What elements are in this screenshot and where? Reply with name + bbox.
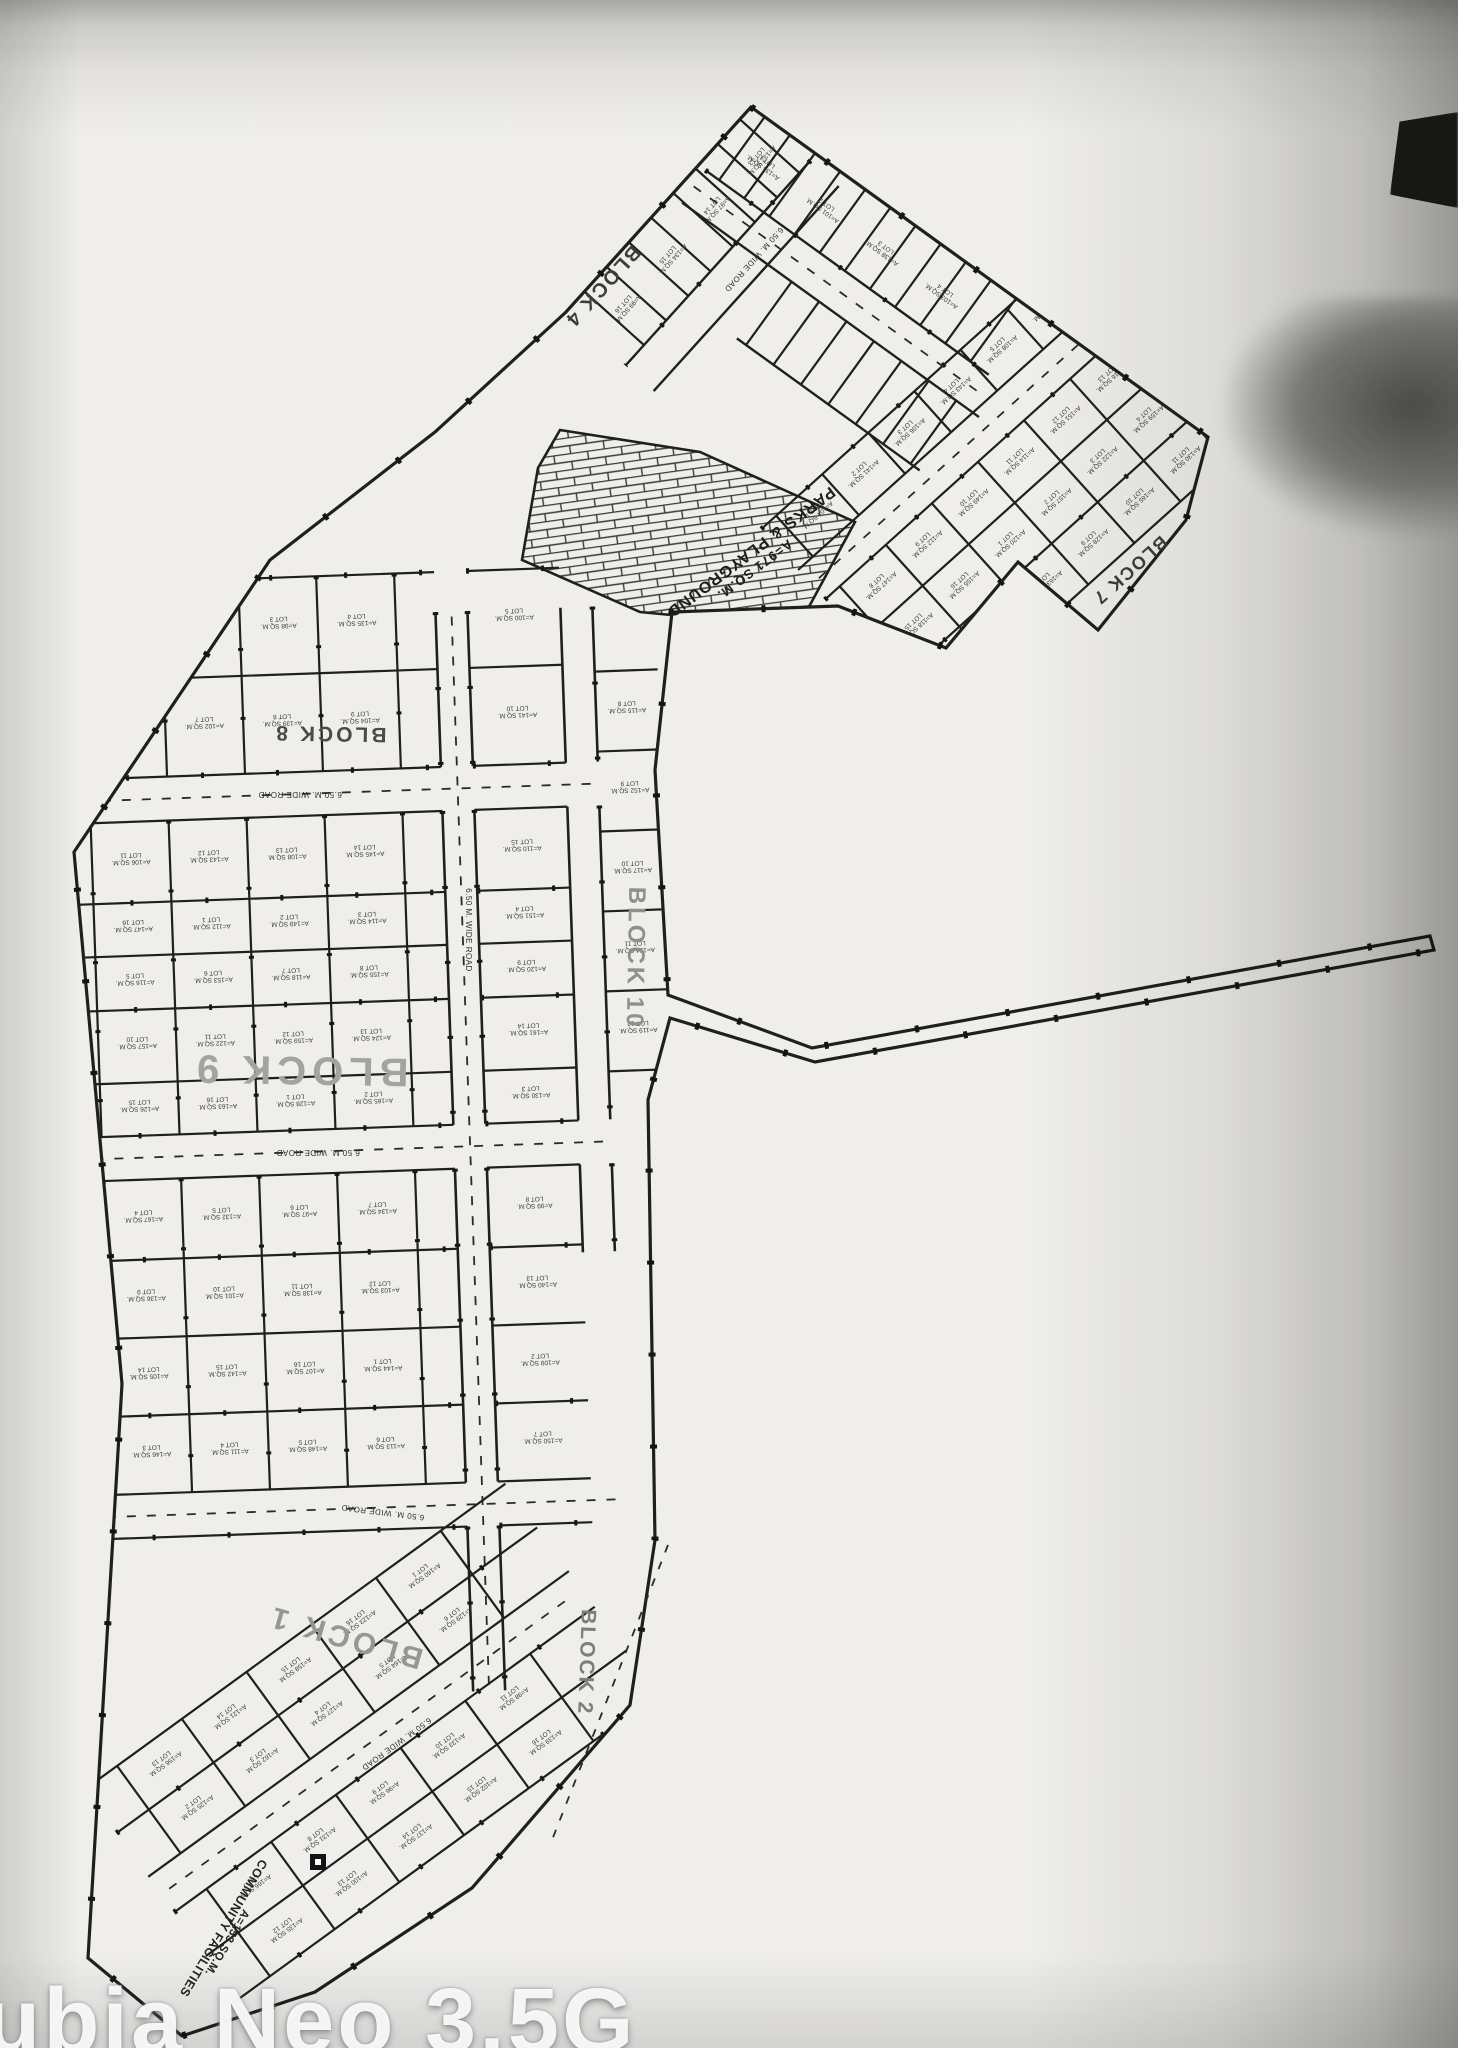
lot-label: A=155 SQ.M.LOT 8 xyxy=(349,963,389,978)
lot-label: A=146 SQ.M.LOT 3 xyxy=(132,1443,172,1458)
lot-line xyxy=(465,1701,528,1788)
lot-label: A=151 SQ.M.LOT 12 xyxy=(1043,399,1082,436)
lot-label: A=111 SQ.M.LOT 4 xyxy=(210,1440,249,1455)
lot-label: A=145 SQ.M.LOT 14 xyxy=(345,843,385,858)
lot-label: A=100 SQ.M.LOT 13 xyxy=(329,1863,369,1897)
road-label-4: 6.50 M. WIDE ROAD xyxy=(723,226,786,294)
lot-label: A=120 SQ.M.LOT 9 xyxy=(506,957,546,972)
lot-line xyxy=(862,313,1226,641)
lot-label: A=126 SQ.M.LOT 15 xyxy=(119,1098,159,1113)
lot-line xyxy=(487,1164,580,1167)
lot-label: A=151 SQ.M.LOT 4 xyxy=(504,904,544,919)
lot-line xyxy=(44,572,434,586)
lot-label: A=101 SQ.M.LOT 10 xyxy=(204,1284,244,1299)
lot-label: A=149 SQ.M.LOT 2 xyxy=(269,912,309,927)
lot-label: A=99 SQ.M.LOT 8 xyxy=(516,1194,552,1209)
lot-label: A=162 SQ.M.LOT 3 xyxy=(239,1740,279,1774)
lot-label: A=121 SQ.M.LOT 14 xyxy=(208,1697,248,1731)
lot-label: A=156 SQ.M.LOT 13 xyxy=(143,1744,183,1778)
lot-label: A=139 SQ.M.LOT 16 xyxy=(523,1722,563,1756)
lot-label: A=134 SQ.M.LOT 15 xyxy=(651,238,688,277)
lot-line xyxy=(856,361,902,424)
lot-label: A=141 SQ.M.LOT 2 xyxy=(842,453,881,490)
lot-label: A=158 SQ.M.LOT 15 xyxy=(272,1650,312,1684)
monument-marker-center xyxy=(315,1859,321,1865)
lot-line xyxy=(567,807,578,1121)
lot-label: A=124 SQ.M.LOT 13 xyxy=(351,1026,391,1041)
lot-label: A=142 SQ.M.LOT 15 xyxy=(207,1362,247,1377)
lot-line xyxy=(483,1067,576,1070)
lot-line xyxy=(612,1163,615,1251)
south-lot-grid: A=156 SQ.M.LOT 13A=121 SQ.M.LOT 14A=158 … xyxy=(85,1484,659,2000)
lot-line xyxy=(455,1169,466,1483)
lot-label: A=116 SQ.M.LOT 5 xyxy=(115,971,154,986)
lot-line xyxy=(477,888,570,891)
lot-label: A=108 SQ.M.LOT 5 xyxy=(980,328,1019,365)
lot-label: A=141 SQ.M.LOT 10 xyxy=(497,704,537,719)
lot-line xyxy=(82,584,89,779)
block-label-block-7: BLOCK 7 xyxy=(1089,532,1172,609)
lot-label: A=122 SQ.M.LOT 3 xyxy=(1080,440,1119,477)
lot-line xyxy=(401,1748,464,1835)
lot-label: A=159 SQ.M.LOT 4 xyxy=(1126,398,1165,435)
lot-line xyxy=(1116,337,1226,460)
lot-line xyxy=(498,1478,591,1481)
lot-label: A=114 SQ.M.LOT 3 xyxy=(347,910,386,925)
lot-label: A=147 SQ.M.LOT 16 xyxy=(113,918,153,933)
lot-line xyxy=(182,1719,245,1806)
lot-line xyxy=(911,401,957,464)
lot-label: A=127 SQ.M.LOT 4 xyxy=(304,1693,344,1727)
lot-line xyxy=(169,821,180,1135)
lot-label: A=157 SQ.M.LOT 10 xyxy=(117,1035,157,1050)
lot-label: A=140 SQ.M.LOT 13 xyxy=(517,1273,557,1288)
lot-line xyxy=(1099,225,1136,266)
lot-line xyxy=(840,586,950,709)
road-label-0: 6.50 M. WIDE ROAD xyxy=(258,790,342,799)
corner-ticks xyxy=(82,584,89,779)
lot-label: A=114 SQ.M.LOT 11 xyxy=(997,440,1035,476)
lot-line xyxy=(746,282,792,345)
lot-label: A=104 SQ.M.LOT 9 xyxy=(340,709,380,724)
lot-label: A=131 SQ.M.LOT 8 xyxy=(297,1820,337,1854)
lot-label: A=152 SQ.M.LOT 9 xyxy=(610,779,650,794)
lot-label: A=103 SQ.M.LOT 12 xyxy=(360,1279,400,1294)
lot-label: A=130 SQ.M.LOT 11 xyxy=(1163,439,1202,476)
photo-background-corner-object xyxy=(1390,112,1458,208)
lot-line xyxy=(1024,420,1134,543)
lot-line xyxy=(469,665,562,668)
block-label-block-2: BLOCK 2 xyxy=(573,1609,600,1716)
lot-line xyxy=(978,462,1088,585)
lot-label: A=153 SQ.M.LOT 6 xyxy=(193,968,233,983)
lot-line xyxy=(769,153,815,216)
lot-label: A=136 SQ.M.LOT 9 xyxy=(126,1287,166,1302)
lot-line xyxy=(117,1766,180,1853)
lot-label: A=133 SQ.M.LOT 10 xyxy=(426,1726,466,1760)
lot-label: A=108 SQ.M.LOT 13 xyxy=(267,845,307,860)
lot-label: A=155 SQ.M.LOT 16 xyxy=(942,564,981,601)
lot-label: A=153 SQ.M.LOT 14 xyxy=(1136,316,1175,353)
lot-line xyxy=(580,1164,583,1252)
photo-background-object xyxy=(1222,298,1458,538)
lot-label: A=135 SQ.M.LOT 4 xyxy=(337,612,377,627)
lot-label: A=110 SQ.M.LOT 15 xyxy=(502,837,541,852)
lot-label: A=159 SQ.M.LOT 12 xyxy=(273,1029,313,1044)
block-label-block-10: BLOCK 10 xyxy=(621,887,650,1030)
lot-label: A=163 SQ.M.LOT 16 xyxy=(197,1095,237,1110)
road-label-3: 6.50 M. WIDE ROAD xyxy=(464,888,473,972)
lot-line xyxy=(442,811,453,1125)
lot-line xyxy=(600,829,663,831)
lot-line xyxy=(499,1522,592,1525)
lot-line xyxy=(609,1069,672,1071)
lot-label: A=144 SQ.M.LOT 1 xyxy=(363,1357,403,1372)
lot-label: A=96 SQ.M.LOT 1 xyxy=(105,620,141,635)
lot-label: A=148 SQ.M.LOT 5 xyxy=(287,1437,327,1452)
lot-line xyxy=(895,244,941,307)
lot-label: A=161 SQ.M.LOT 14 xyxy=(509,1021,549,1036)
lot-label: A=118 SQ.M.LOT 7 xyxy=(271,966,310,981)
lot-line xyxy=(160,582,167,777)
lot-line xyxy=(474,810,485,1124)
lot-label: A=147 SQ.M.LOT 8 xyxy=(859,565,898,602)
block-label-block-9: BLOCK 9 xyxy=(191,1046,409,1094)
lot-label: A=128 SQ.M.LOT 1 xyxy=(275,1092,315,1107)
lot-label: A=101 SQ.M.LOT 2 xyxy=(805,190,845,224)
block4-strips: A=132 SQ.M.LOT 13A=97 SQ.M.LOT 14A=134 S… xyxy=(585,117,1017,470)
lot-line xyxy=(773,302,819,365)
lot-label: A=137 SQ.M.LOT 6 xyxy=(106,717,146,732)
lot-label: A=102 SQ.M.LOT 15 xyxy=(458,1769,498,1803)
lot-label: A=120 SQ.M.LOT 1 xyxy=(988,523,1027,560)
lot-label: A=134 SQ.M.LOT 7 xyxy=(357,1200,397,1215)
road-centerline xyxy=(452,617,489,1686)
road-centerline xyxy=(819,264,1168,578)
lot-line xyxy=(1070,379,1180,502)
lot-line xyxy=(441,1531,504,1618)
camera-watermark: ubia Neo 3.5G xyxy=(0,1969,637,2048)
lot-label: A=110 SQ.M.LOT 7 xyxy=(1072,245,1110,281)
lot-label: A=160 SQ.M.LOT 1 xyxy=(402,1556,442,1590)
lot-label: A=125 SQ.M.LOT 2 xyxy=(175,1788,215,1822)
lot-line xyxy=(798,242,1162,570)
lot-label: A=124 SQ.M.LOT 5 xyxy=(1172,357,1211,394)
northeast-lot-grid: A=104 SQ.M.LOT 1A=141 SQ.M.LOT 2A=106 SQ… xyxy=(761,201,1299,722)
lot-label: A=115 SQ.M.LOT 8 xyxy=(607,699,646,714)
lot-label: A=106 SQ.M.LOT 11 xyxy=(111,851,151,866)
lot-label: A=98 SQ.M.LOT 3 xyxy=(260,614,296,629)
lot-label: A=149 SQ.M.LOT 10 xyxy=(951,482,990,519)
lot-line xyxy=(473,763,566,766)
lot-label: A=128 SQ.M.LOT 9 xyxy=(1071,522,1110,559)
block-label-block-8: BLOCK 8 xyxy=(273,721,387,746)
lot-label: A=157 SQ.M.LOT 2 xyxy=(1034,481,1073,518)
lot-line xyxy=(485,1120,578,1123)
lot-line xyxy=(336,1795,399,1882)
lot-label: A=96 SQ.M.LOT 9 xyxy=(363,1774,400,1806)
lot-label: A=130 SQ.M.LOT 3 xyxy=(511,1084,551,1099)
lot-label: A=113 SQ.M.LOT 6 xyxy=(366,1435,405,1450)
lot-label: A=126 SQ.M.LOT 7 xyxy=(979,605,1018,642)
lot-label: A=161 SQ.M.LOT 6 xyxy=(933,646,972,683)
lot-label: A=112 SQ.M.LOT 1 xyxy=(191,915,230,930)
lot-label: A=98 SQ.M.LOT 11 xyxy=(493,1680,530,1712)
lot-label: A=122 SQ.M.LOT 11 xyxy=(195,1032,235,1047)
lot-line xyxy=(945,280,991,343)
lot-line xyxy=(490,1244,583,1247)
lot-line xyxy=(206,1650,627,1956)
road-label-1: 6.50 M. WIDE ROAD xyxy=(276,1148,360,1157)
lot-line xyxy=(801,321,847,384)
lot-label: A=100 SQ.M.LOT 5 xyxy=(494,606,534,621)
lot-line xyxy=(492,1322,585,1325)
lot-line xyxy=(51,767,441,781)
lot-label: A=137 SQ.M.LOT 14 xyxy=(393,1816,433,1850)
block-label-block-4: BLOCK 4 xyxy=(560,241,644,331)
lot-label: A=132 SQ.M.LOT 5 xyxy=(201,1205,241,1220)
lot-line xyxy=(597,749,660,751)
lot-label: A=167 SQ.M.LOT 4 xyxy=(123,1208,163,1223)
lot-line xyxy=(474,807,567,810)
lot-label: A=105 SQ.M.LOT 14 xyxy=(129,1365,169,1380)
lot-label: A=102 SQ.M.LOT 7 xyxy=(184,715,224,730)
lot-label: A=138 SQ.M.LOT 11 xyxy=(282,1282,322,1297)
lot-label: A=117 SQ.M.LOT 10 xyxy=(613,859,652,874)
lot-line xyxy=(560,608,565,763)
lot-line xyxy=(495,1400,588,1403)
lot-line xyxy=(479,941,572,944)
lot-line xyxy=(595,669,658,671)
lot-label: A=107 SQ.M.LOT 16 xyxy=(285,1359,325,1374)
lot-line xyxy=(932,503,1042,626)
lot-label: A=103 SQ.M.LOT 4 xyxy=(923,276,963,310)
lot-label: A=143 SQ.M.LOT 12 xyxy=(189,848,229,863)
lot-label: A=97 SQ.M.LOT 6 xyxy=(281,1203,317,1218)
lot-label: A=133 SQ.M.LOT 2 xyxy=(181,617,221,632)
lot-label: A=112 SQ.M.LOT 9 xyxy=(905,523,943,559)
lot-label: A=150 SQ.M.LOT 7 xyxy=(523,1429,563,1444)
lot-label: A=165 SQ.M.LOT 10 xyxy=(1117,481,1156,518)
lot-line xyxy=(1053,267,1090,308)
lot-line xyxy=(481,995,574,998)
lot-line xyxy=(78,1527,468,1541)
lot-line xyxy=(247,1672,310,1759)
lot-line xyxy=(845,208,891,271)
lot-label: A=135 SQ.M.LOT 12 xyxy=(264,1910,304,1944)
lot-line xyxy=(828,341,874,404)
photo-subdivision-plan: A=96 SQ.M.LOT 1A=133 SQ.M.LOT 2A=98 SQ.M… xyxy=(0,0,1458,2048)
lot-label: A=109 SQ.M.LOT 2 xyxy=(520,1351,560,1366)
